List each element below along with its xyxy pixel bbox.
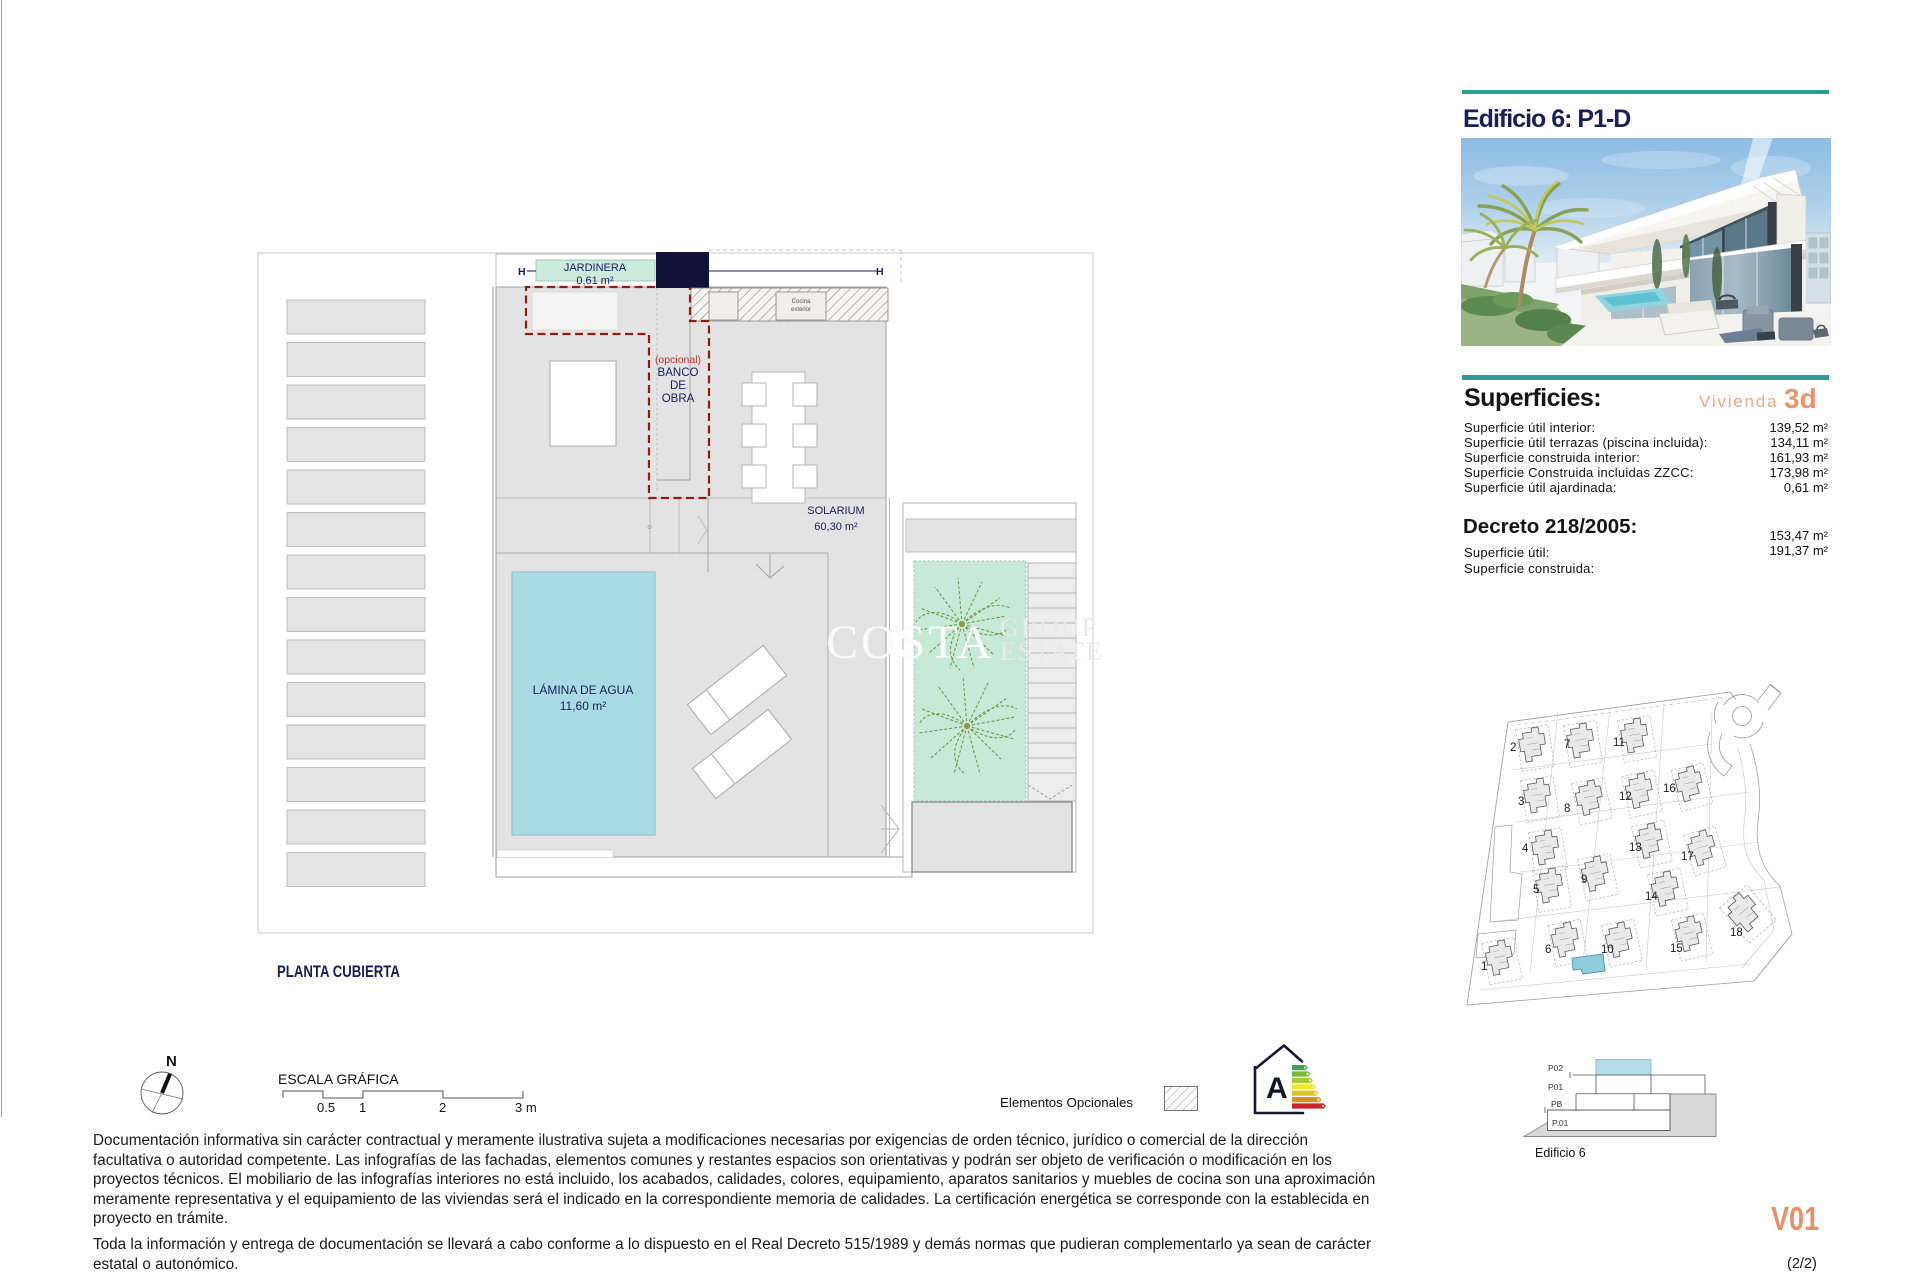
svg-text:JARDINERA: JARDINERA: [564, 262, 627, 274]
svg-text:H: H: [876, 266, 884, 278]
svg-text:17: 17: [1681, 851, 1694, 863]
svg-text:11,60 m²: 11,60 m²: [560, 699, 606, 713]
svg-text:8: 8: [1564, 803, 1570, 815]
svg-text:ESTATE: ESTATE: [1000, 637, 1104, 666]
svg-text:10: 10: [1601, 944, 1614, 956]
svg-text:14: 14: [1645, 891, 1658, 903]
svg-text:3: 3: [1518, 796, 1524, 808]
svg-text:P.01: P.01: [1552, 1118, 1569, 1128]
svg-text:ESCALA GRÁFICA: ESCALA GRÁFICA: [278, 1071, 399, 1087]
svg-text:13: 13: [1629, 842, 1642, 854]
svg-text:SOLARIUM: SOLARIUM: [807, 505, 864, 517]
svg-text:OBRA: OBRA: [662, 393, 695, 405]
svg-text:BANCO: BANCO: [658, 367, 699, 379]
svg-text:0,61 m²: 0,61 m²: [576, 275, 614, 287]
svg-text:12: 12: [1619, 791, 1632, 803]
svg-text:H: H: [518, 266, 526, 278]
svg-text:1: 1: [1481, 961, 1487, 973]
svg-text:18: 18: [1730, 927, 1743, 939]
svg-text:PLANTA CUBIERTA: PLANTA CUBIERTA: [277, 963, 400, 982]
svg-text:11: 11: [1613, 737, 1625, 749]
svg-text:0.5: 0.5: [317, 1100, 335, 1115]
svg-text:6: 6: [1545, 944, 1551, 956]
svg-text:15: 15: [1670, 943, 1683, 955]
svg-text:exterior: exterior: [791, 307, 811, 313]
svg-text:9: 9: [1581, 874, 1587, 886]
svg-text:60,30 m²: 60,30 m²: [814, 521, 858, 533]
svg-text:2: 2: [439, 1100, 446, 1115]
svg-text:7: 7: [1564, 739, 1570, 751]
svg-text:16: 16: [1663, 783, 1676, 795]
svg-text:3 m: 3 m: [515, 1100, 537, 1115]
svg-text:4: 4: [1522, 843, 1529, 855]
svg-text:P01: P01: [1548, 1082, 1563, 1092]
svg-text:N: N: [166, 1053, 177, 1070]
svg-text:1: 1: [359, 1100, 366, 1115]
svg-text:2: 2: [1510, 742, 1516, 754]
svg-text:COSTA: COSTA: [826, 616, 995, 669]
svg-text:5: 5: [1533, 884, 1539, 896]
svg-text:LÁMINA DE AGUA: LÁMINA DE AGUA: [533, 682, 634, 697]
svg-text:Cocina: Cocina: [792, 299, 811, 305]
svg-text:DE: DE: [670, 380, 686, 392]
svg-text:(opcional): (opcional): [655, 354, 701, 366]
svg-text:A: A: [1266, 1072, 1288, 1105]
svg-text:PB: PB: [1551, 1099, 1563, 1109]
svg-text:P02: P02: [1548, 1063, 1563, 1073]
